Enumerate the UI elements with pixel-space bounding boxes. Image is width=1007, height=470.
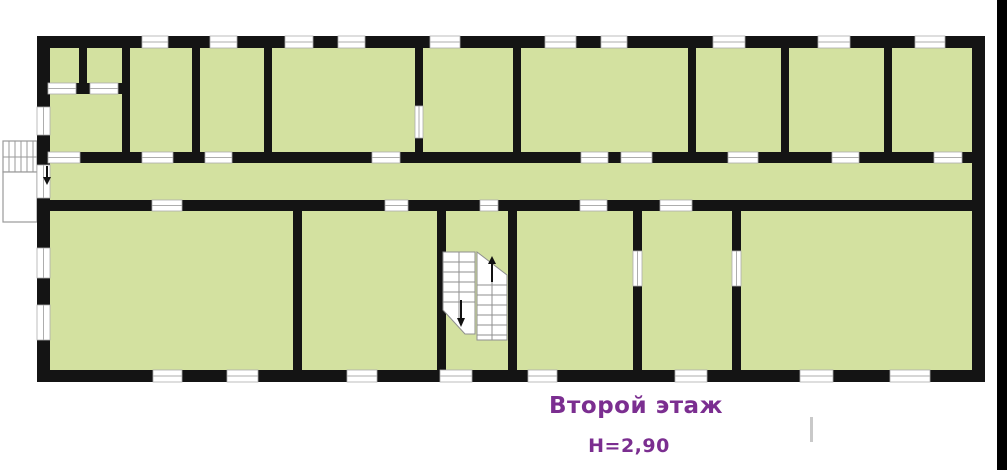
wall (415, 36, 423, 106)
stray-mark (810, 417, 813, 442)
floor-title: Второй этаж (506, 393, 766, 419)
wall (513, 36, 521, 163)
wall (122, 36, 130, 163)
floor-height-label: Н=2,90 (506, 435, 752, 457)
wall (884, 36, 892, 163)
wall (415, 138, 423, 163)
wall (192, 36, 200, 163)
wall (732, 286, 741, 382)
wall (688, 36, 696, 163)
wall (732, 200, 741, 251)
wall (633, 286, 642, 382)
wall (264, 36, 272, 163)
floor-plan-drawing (0, 0, 1007, 470)
wall (293, 200, 302, 382)
wall (79, 36, 87, 88)
wall (781, 36, 789, 163)
exterior-staircase (3, 172, 37, 222)
floor-plan-page: Второй этаж Н=2,90 (0, 0, 1007, 470)
wall (508, 200, 517, 382)
wall (633, 200, 642, 251)
screenshot-right-edge-strip (997, 0, 1007, 470)
